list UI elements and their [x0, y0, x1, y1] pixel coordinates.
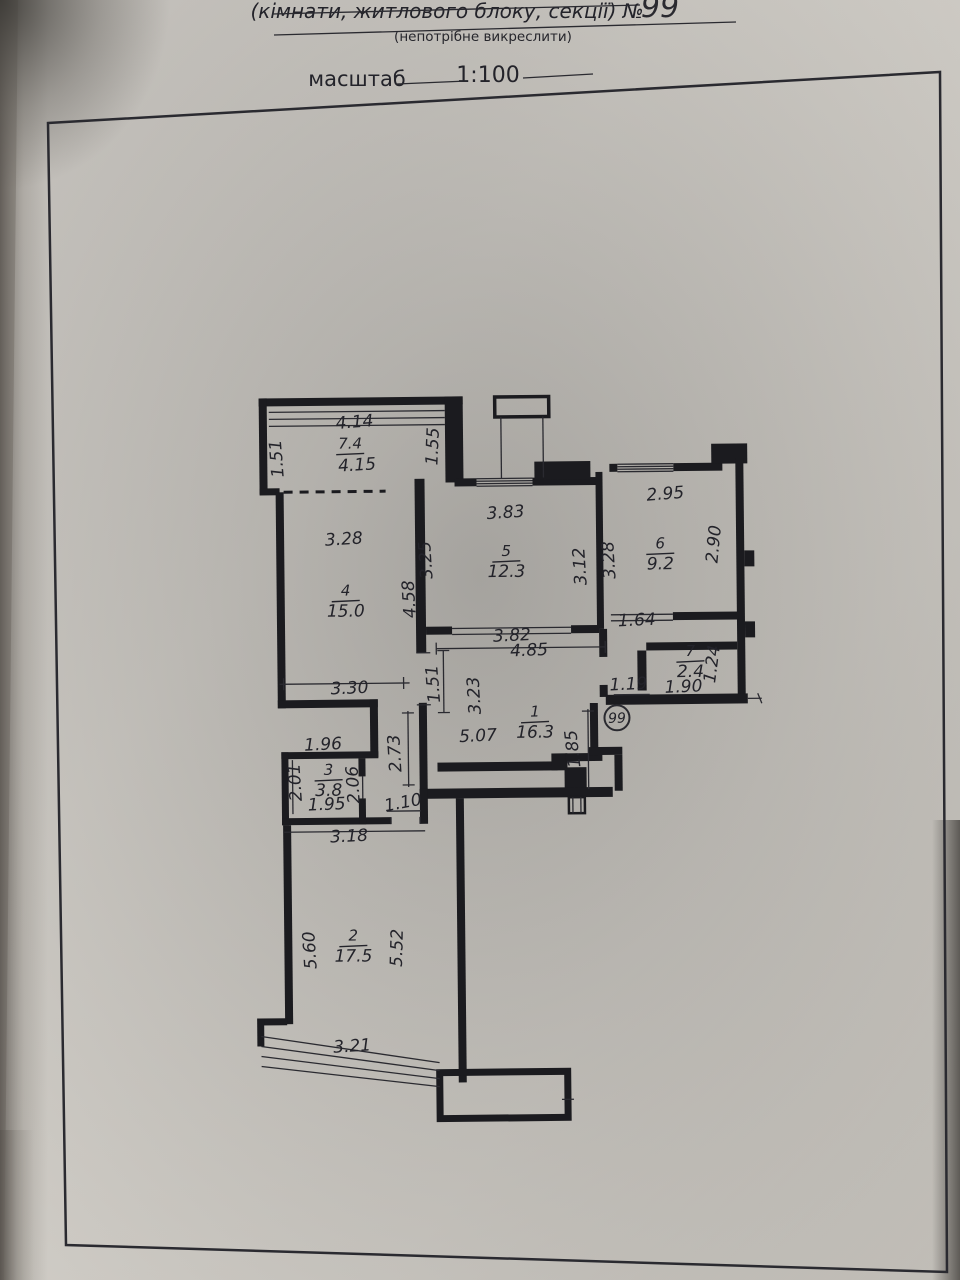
dimension-label: 2.90: [702, 524, 725, 564]
dimension-label: 3.83: [486, 502, 525, 524]
room-label-balcony: 7.4: [336, 434, 364, 454]
room-number: 4: [341, 582, 351, 600]
dimension-label: 1.55: [422, 427, 444, 466]
dimension-label: 1.51: [422, 664, 445, 703]
room-area: 16.3: [516, 722, 554, 742]
header-line2: (непотрібне викреслити): [394, 29, 572, 45]
scale-label: масштаб: [308, 67, 406, 91]
room-number: 6: [655, 534, 665, 552]
photographed-floor-plan-document: (кімнати, житлового блоку, секції) № 99 …: [0, 0, 960, 1280]
dimension-label: 5.60: [299, 931, 321, 970]
dimension-label: 2.73: [384, 734, 406, 773]
apartment-number: 99: [608, 711, 626, 727]
dimension-label: 3.28: [324, 528, 363, 550]
photo-background: [0, 0, 960, 1280]
room-number: 3: [324, 761, 334, 779]
dimension-label: 3.30: [330, 678, 369, 700]
dimension-label: 4.85: [510, 640, 549, 662]
room-number: 7: [685, 642, 695, 660]
dimension-label: 1.96: [304, 734, 343, 756]
room-number: 2: [348, 926, 358, 944]
dimension-label: 2.01: [284, 763, 306, 802]
dimension-label: 1.51: [266, 439, 289, 478]
dimension-label: 4.58: [399, 580, 421, 619]
dimension-label: 2.95: [646, 483, 685, 506]
dimension-label: 3.18: [330, 826, 369, 848]
dimension-label: 3.25: [415, 541, 437, 580]
dimension-label: 1.64: [617, 610, 656, 632]
dimension-label: 3.23: [464, 676, 486, 715]
dimension-label: 2.06: [342, 765, 364, 804]
dimension-label: 1.19: [609, 674, 648, 696]
room-area: 17.5: [334, 946, 372, 966]
header-line1: (кімнати, житлового блоку, секції) №: [250, 0, 643, 23]
dimension-label: 3.21: [333, 1035, 372, 1057]
dimension-label: 3.12: [569, 547, 591, 586]
dimension-label: 5.52: [387, 929, 408, 967]
room-number: 7.4: [338, 434, 362, 452]
room-area: 12.3: [487, 562, 525, 582]
scale-value: 1:100: [456, 63, 519, 88]
room-area: 9.2: [647, 554, 674, 574]
room-number: 1: [530, 703, 540, 721]
room-area: 15.0: [327, 601, 365, 621]
dimension-label: 4.14: [335, 411, 374, 434]
room-number: 5: [501, 542, 511, 560]
dimension-label: 4.15: [338, 454, 377, 476]
room-area: 2.4: [677, 662, 704, 682]
dimension-label: 5.07: [459, 725, 498, 747]
room-area: 3.8: [315, 781, 342, 801]
header-handwritten-number: 99: [641, 0, 679, 25]
dimension-label: 3.28: [598, 540, 620, 579]
